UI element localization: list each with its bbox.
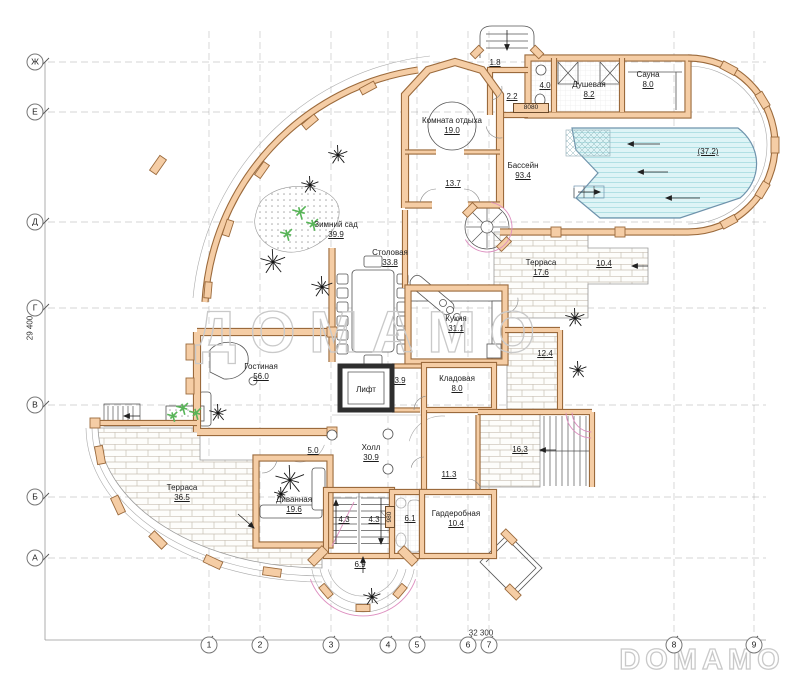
grid-col-4: 4 — [380, 637, 397, 654]
grid-col-8: 8 — [666, 637, 683, 654]
floor-plan-canvas: ДОМАМО DOMAMO — [0, 0, 800, 676]
grid-col-7: 7 — [481, 637, 498, 654]
piano-stool — [249, 377, 257, 385]
grid-row-Ж: Ж — [27, 54, 44, 71]
dimension-left-total: 29 400 — [26, 316, 35, 340]
grid-col-1: 1 — [201, 637, 218, 654]
lift-car — [348, 372, 384, 404]
grid-row-Е: Е — [27, 104, 44, 121]
winter-garden-bed — [255, 186, 340, 252]
grid-col-9: 9 — [746, 637, 763, 654]
wc-basin — [536, 65, 546, 75]
door-tag-top: 8080 — [513, 103, 549, 113]
grid-row-Г: Г — [27, 300, 44, 317]
floor-plan-page: ДОМАМО DOMAMO 29 400 32 300 8080 980 Ком… — [0, 0, 800, 676]
door-tag-side: 980 — [385, 506, 395, 528]
spa-alcove — [428, 102, 476, 150]
grid-row-Б: Б — [27, 489, 44, 506]
grid-col-3: 3 — [323, 637, 340, 654]
bath-tiles — [394, 494, 420, 554]
grid-row-Д: Д — [27, 214, 44, 231]
watermark-center: ДОМАМО — [195, 300, 549, 365]
pool-steps-hatch — [566, 130, 610, 156]
grid-col-5: 5 — [409, 637, 426, 654]
grid-row-А: А — [27, 550, 44, 567]
swimming-pool — [566, 128, 757, 218]
shower-tiles — [556, 60, 620, 112]
grid-col-2: 2 — [252, 637, 269, 654]
grid-col-6: 6 — [460, 637, 477, 654]
terrace-16-paving — [478, 414, 540, 487]
grid-row-В: В — [27, 397, 44, 414]
